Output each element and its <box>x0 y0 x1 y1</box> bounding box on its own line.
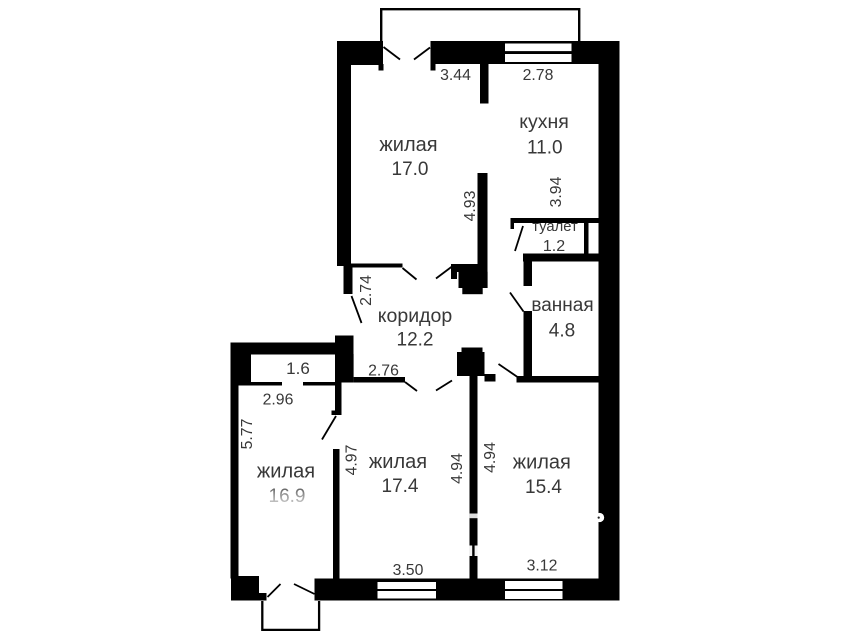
svg-text:17.4: 17.4 <box>382 476 419 497</box>
svg-text:ванная: ванная <box>531 295 593 316</box>
svg-text:2.96: 2.96 <box>263 392 294 409</box>
svg-text:жилая: жилая <box>513 452 571 474</box>
svg-text:жилая: жилая <box>257 461 315 483</box>
svg-text:3.94: 3.94 <box>548 176 565 207</box>
svg-text:2.78: 2.78 <box>523 67 554 84</box>
svg-text:4.93: 4.93 <box>462 190 479 221</box>
svg-text:2.76: 2.76 <box>368 363 399 380</box>
svg-text:коридор: коридор <box>378 305 453 327</box>
svg-text:кухня: кухня <box>519 111 569 133</box>
svg-text:3.12: 3.12 <box>527 558 558 575</box>
svg-text:5.77: 5.77 <box>239 419 256 450</box>
svg-text:11.0: 11.0 <box>527 137 563 158</box>
svg-text:1.2: 1.2 <box>543 238 565 255</box>
svg-text:15.4: 15.4 <box>525 477 562 498</box>
svg-text:жилая: жилая <box>369 451 427 473</box>
svg-text:4.94: 4.94 <box>449 453 466 484</box>
svg-text:16.9: 16.9 <box>269 486 306 507</box>
svg-text:туалет: туалет <box>532 219 578 235</box>
svg-text:жилая: жилая <box>379 134 437 156</box>
svg-text:4.94: 4.94 <box>482 442 499 473</box>
svg-text:4.8: 4.8 <box>549 321 575 342</box>
svg-text:17.0: 17.0 <box>392 159 429 180</box>
svg-text:1.6: 1.6 <box>286 359 310 378</box>
svg-text:2.74: 2.74 <box>358 275 375 306</box>
svg-text:3.44: 3.44 <box>440 67 471 84</box>
svg-text:4.97: 4.97 <box>344 445 361 476</box>
svg-text:12.2: 12.2 <box>397 330 434 351</box>
svg-text:3.50: 3.50 <box>393 562 424 579</box>
